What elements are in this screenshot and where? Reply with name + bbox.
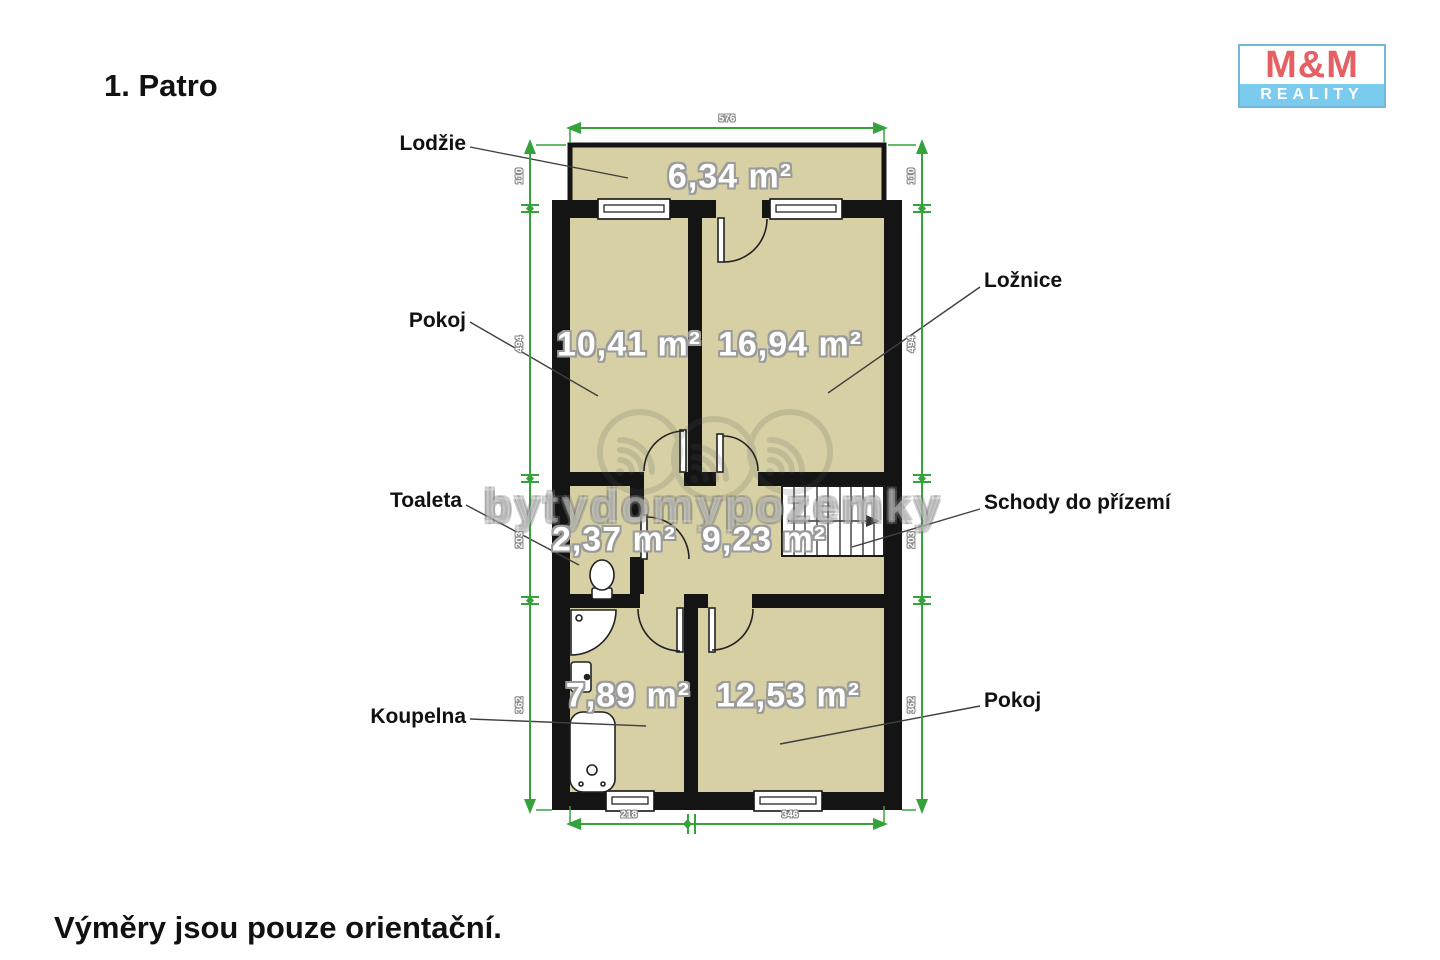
dim-left-362: 362 xyxy=(515,697,526,714)
window-top-left xyxy=(598,199,670,219)
window-bottom-left xyxy=(606,791,654,811)
bottom-band-wall-seg2 xyxy=(684,594,708,608)
logo-mm-text: M&M xyxy=(1240,46,1384,84)
toilet-wall-seg2 xyxy=(630,557,644,594)
label-toaleta: Toaleta xyxy=(390,489,462,513)
label-koupelna: Koupelna xyxy=(370,705,466,729)
label-pokoj-top: Pokoj xyxy=(409,309,466,333)
dim-left-494: 494 xyxy=(515,336,526,353)
label-lodzie: Lodžie xyxy=(400,132,467,156)
loggia-door-opening xyxy=(716,198,762,220)
area-koupelna: 7,89 m² xyxy=(566,677,690,716)
window-top-right xyxy=(770,199,842,219)
dim-bottom-346: 346 xyxy=(782,810,799,821)
disclaimer-note: Výměry jsou pouze orientační. xyxy=(54,910,502,946)
label-schody: Schody do přízemí xyxy=(984,491,1171,515)
dim-left-110: 110 xyxy=(515,168,526,184)
dim-right-203: 203 xyxy=(907,532,918,549)
dim-top-576: 576 xyxy=(719,114,736,125)
page-title: 1. Patro xyxy=(104,68,218,104)
logo-reality-text: REALITY xyxy=(1240,84,1384,106)
area-pokoj-top: 10,41 m² xyxy=(557,326,701,365)
toilet-fixture xyxy=(590,560,614,599)
dim-top xyxy=(566,122,888,143)
area-pokoj-bottom: 12,53 m² xyxy=(716,677,860,716)
area-toaleta: 2,37 m² xyxy=(552,521,676,560)
label-loznice: Ložnice xyxy=(984,269,1062,293)
floor-plan-page: bytydomypozemky 1. Patro Výměry jsou pou… xyxy=(0,0,1440,960)
dim-left-203: 203 xyxy=(515,532,526,549)
area-chodba: 9,23 m² xyxy=(702,521,826,560)
dim-right-362: 362 xyxy=(907,697,918,714)
label-pokoj-bottom: Pokoj xyxy=(984,689,1041,713)
window-bottom-right xyxy=(754,791,822,811)
area-lodzie: 6,34 m² xyxy=(668,158,792,197)
bottom-band-wall-seg3 xyxy=(752,594,884,608)
mm-reality-logo: M&M REALITY xyxy=(1238,44,1386,108)
dim-right-494: 494 xyxy=(907,336,918,353)
dim-bottom-218: 218 xyxy=(621,810,638,821)
area-loznice: 16,94 m² xyxy=(718,326,862,365)
dim-right-110: 110 xyxy=(907,168,918,184)
